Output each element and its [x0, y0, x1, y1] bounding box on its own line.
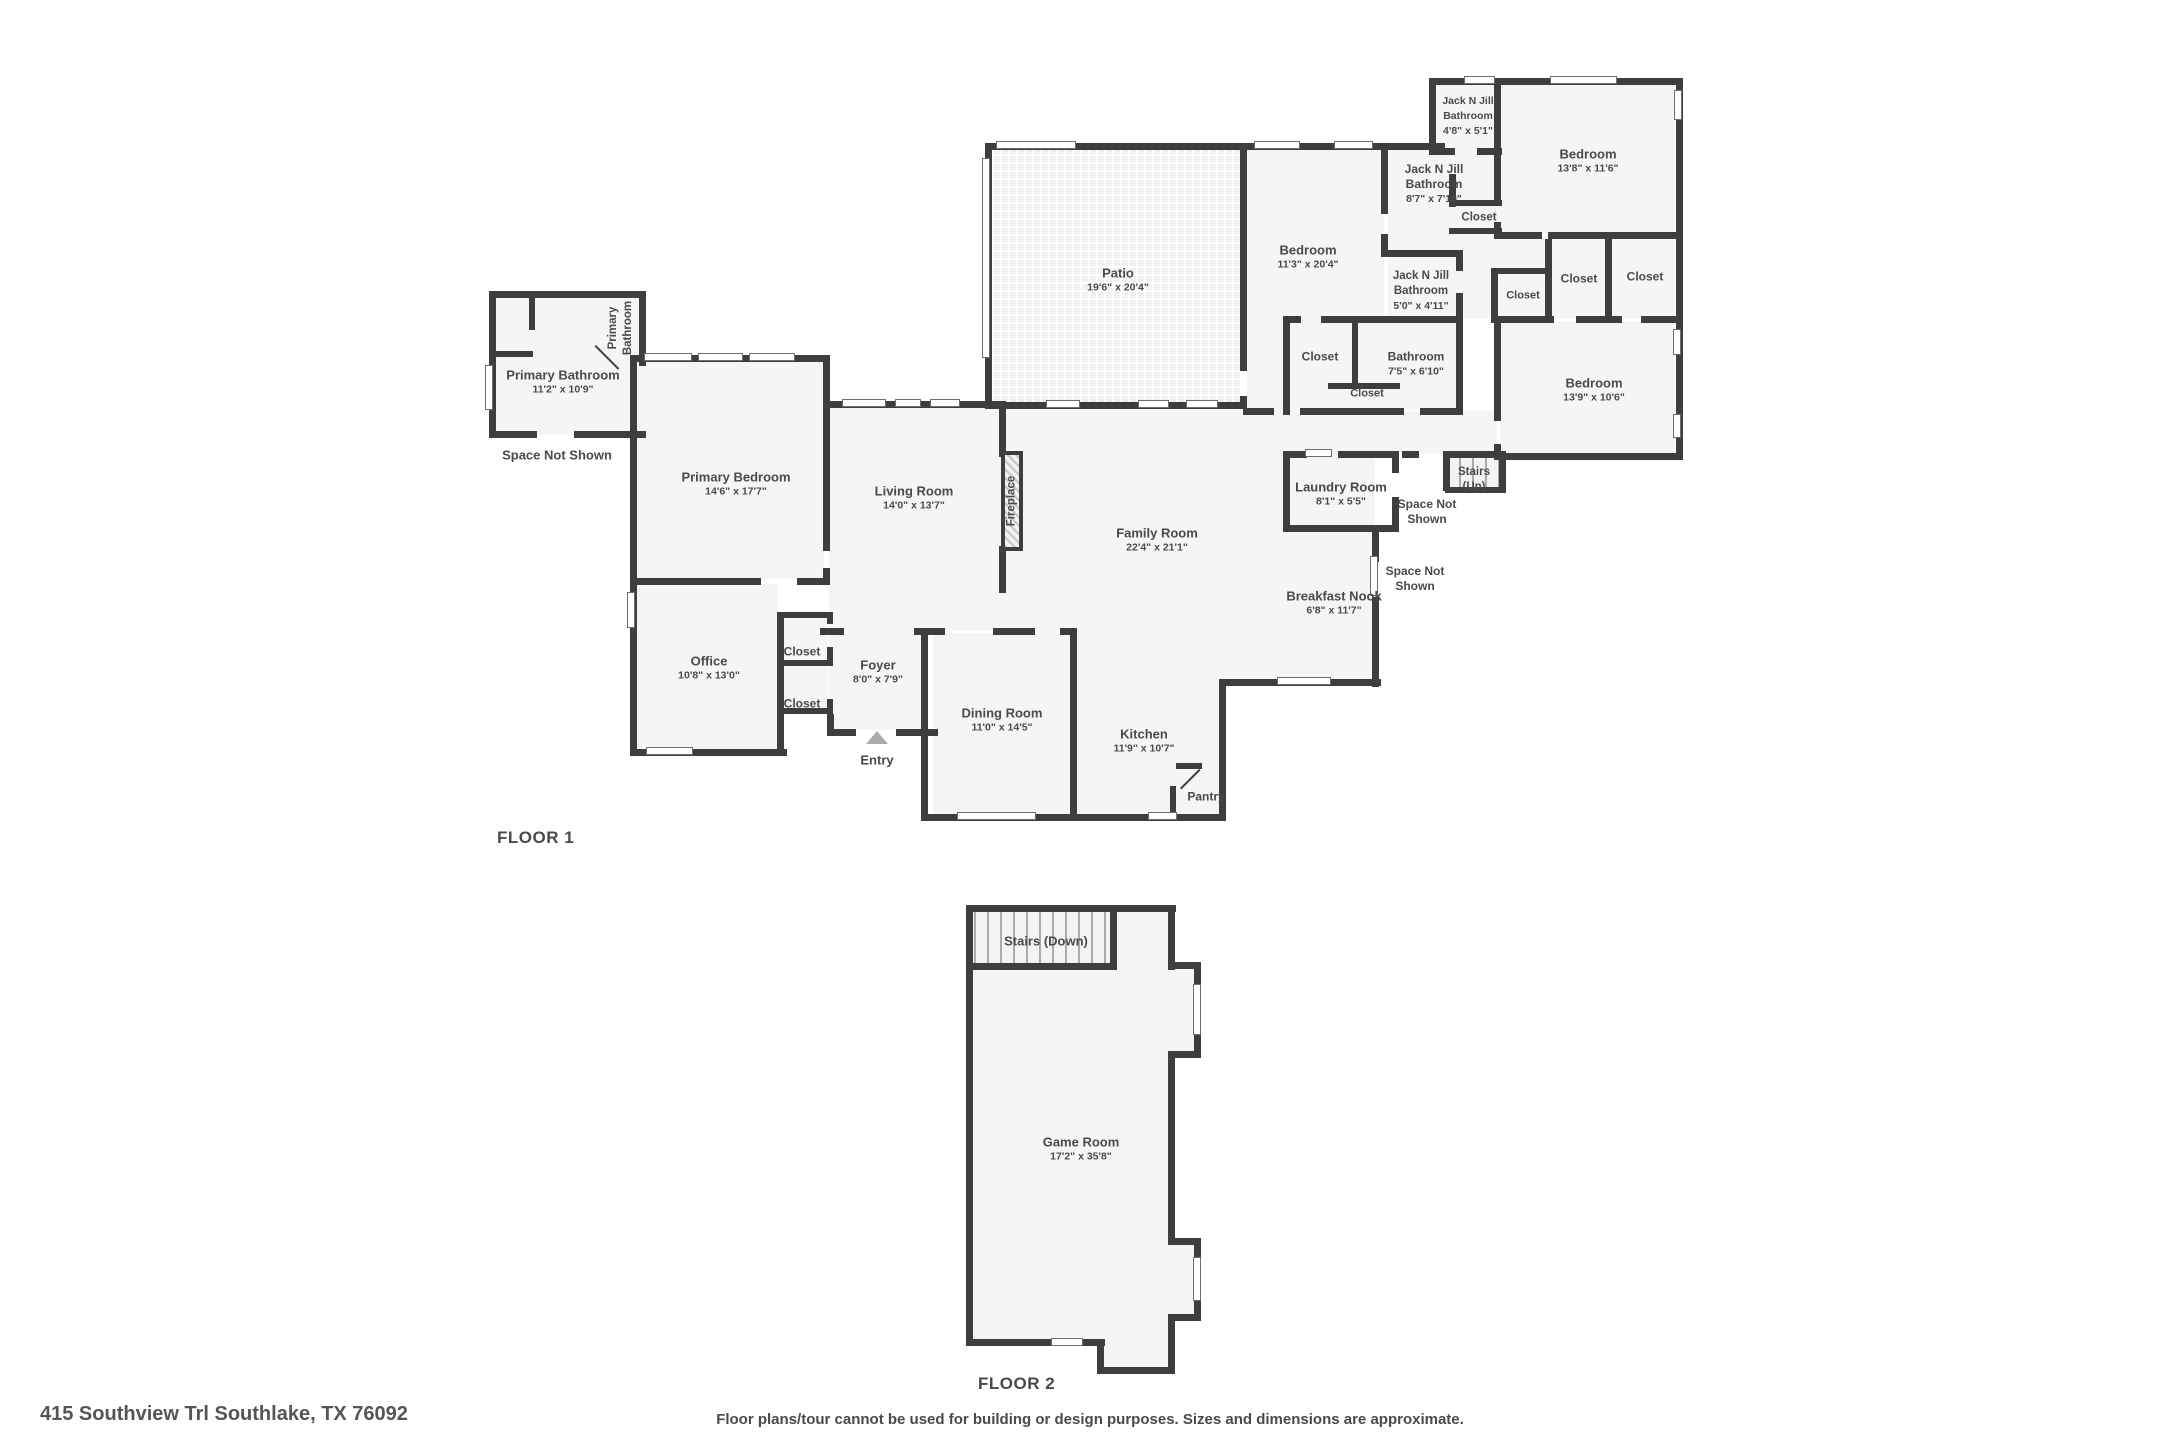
room-dimensions: 10'8" x 13'0": [654, 670, 764, 683]
room-label-bathroom: Bathroom7'5" x 6'10": [1366, 350, 1466, 379]
window: [1254, 141, 1300, 149]
floor-plan-canvas: Primary Bathroom11'2" x 10'9"Primary Bat…: [0, 0, 2172, 1448]
window: [1464, 76, 1495, 84]
room-label-jack-n-jill-bathroom: Jack N Jill Bathroom5'0" x 4'11": [1371, 269, 1471, 313]
wall: [1300, 408, 1404, 415]
wall: [630, 355, 637, 585]
wall: [993, 628, 1035, 635]
wall: [914, 628, 945, 635]
wall: [1443, 451, 1506, 458]
room-label-primary-bedroom: Primary Bedroom14'6" x 17'7": [651, 470, 821, 499]
wall: [1548, 232, 1682, 239]
room-name: Patio: [1063, 266, 1173, 281]
window: [1673, 414, 1681, 438]
room-label-breakfast-nook: Breakfast Nook6'8" x 11'7": [1259, 589, 1409, 618]
room-name: Laundry Room: [1276, 480, 1406, 495]
window: [1277, 677, 1331, 685]
room-dimensions: 17'2" x 35'8": [1016, 1151, 1146, 1164]
room-label-family-room: Family Room22'4" x 21'1": [1092, 526, 1222, 555]
room-name: Foyer: [833, 658, 923, 673]
room-dimensions: 13'9" x 10'6": [1539, 392, 1649, 405]
room-area: [829, 406, 1000, 630]
room-label-foyer: Foyer8'0" x 7'9": [833, 658, 923, 687]
wall: [966, 905, 1176, 912]
room-name: Bedroom: [1253, 243, 1363, 258]
window: [1193, 1257, 1201, 1301]
room-label-closet: Closet: [1285, 350, 1355, 365]
room-name: Primary Bathroom: [606, 285, 636, 371]
room-name: Closet: [1544, 272, 1614, 287]
window: [644, 353, 692, 361]
room-label-fireplace: Fireplace: [1005, 456, 1020, 546]
room-name: Closet: [1444, 211, 1514, 226]
room-area: [1100, 1338, 1169, 1367]
window: [749, 353, 795, 361]
room-dimensions: 4'8" x 5'1": [1424, 125, 1512, 138]
window: [842, 399, 886, 407]
room-dimensions: 22'4" x 21'1": [1092, 542, 1222, 555]
room-label-closet: Closet: [1544, 272, 1614, 287]
window: [1674, 90, 1682, 120]
room-dimensions: 5'0" x 4'11": [1371, 300, 1471, 313]
window: [1550, 76, 1617, 84]
room-label-kitchen: Kitchen11'9" x 10'7": [1089, 727, 1199, 756]
room-name: Bedroom: [1539, 376, 1649, 391]
wall: [1168, 905, 1175, 970]
wall: [529, 291, 535, 330]
window: [1186, 400, 1218, 408]
room-label-patio: Patio19'6" x 20'4": [1063, 266, 1173, 295]
window: [627, 592, 635, 628]
room-dimensions: 8'0" x 7'9": [833, 674, 923, 687]
room-dimensions: 11'9" x 10'7": [1089, 743, 1199, 756]
room-area: [973, 912, 1169, 1340]
wall: [827, 612, 833, 624]
room-label-entry: Entry: [842, 753, 912, 768]
wall: [630, 578, 761, 585]
room-label-closet: Closet: [1493, 289, 1553, 304]
wall: [777, 612, 784, 756]
wall: [823, 568, 830, 585]
room-name: Living Room: [849, 484, 979, 499]
wall: [1097, 1367, 1175, 1374]
room-label-bedroom: Bedroom11'3" x 20'4": [1253, 243, 1363, 272]
room-name: Primary Bedroom: [651, 470, 821, 485]
window: [646, 747, 693, 755]
room-label-bedroom: Bedroom13'9" x 10'6": [1539, 376, 1649, 405]
wall: [966, 963, 1117, 970]
wall: [1402, 451, 1419, 458]
room-label-primary-bathroom: Primary Bathroom11'2" x 10'9": [498, 368, 628, 397]
wall: [1381, 250, 1463, 257]
room-name: Space Not Shown: [502, 448, 612, 463]
wall: [1456, 250, 1463, 271]
window: [485, 365, 493, 410]
room-dimensions: 11'0" x 14'5": [937, 722, 1067, 735]
room-label-dining-room: Dining Room11'0" x 14'5": [937, 706, 1067, 735]
wall: [1168, 1051, 1175, 1245]
room-label-space-not-shown: Space Not Shown: [1377, 497, 1477, 527]
window: [1148, 812, 1177, 820]
room-area: [1375, 411, 1497, 453]
room-name: Space Not Shown: [1377, 497, 1477, 527]
wall: [777, 660, 833, 666]
disclaimer-text: Floor plans/tour cannot be used for buil…: [600, 1411, 1580, 1428]
wall: [966, 1339, 1105, 1346]
room-label-closet: Closet: [767, 645, 837, 660]
window: [957, 812, 1036, 820]
room-name: Closet: [1493, 289, 1553, 304]
room-name: Bathroom: [1366, 350, 1466, 365]
wall: [1449, 228, 1502, 234]
wall: [827, 729, 856, 736]
room-label-bedroom: Bedroom13'8" x 11'6": [1533, 147, 1643, 176]
window: [698, 353, 743, 361]
wall: [966, 905, 973, 1346]
room-dimensions: 14'6" x 17'7": [651, 486, 821, 499]
wall: [1491, 268, 1550, 274]
wall: [1321, 316, 1463, 323]
room-name: Dining Room: [937, 706, 1067, 721]
room-label-jack-n-jill-bathroom: Jack N Jill Bathroom4'8" x 5'1": [1424, 94, 1512, 138]
room-name: Closet: [1285, 350, 1355, 365]
wall: [1429, 148, 1455, 155]
wall: [489, 351, 533, 357]
window: [1138, 400, 1169, 408]
room-label-closet: Closet: [1610, 270, 1680, 285]
room-name: Closet: [767, 645, 837, 660]
room-name: Closet: [1610, 270, 1680, 285]
wall: [489, 431, 537, 438]
room-label-stairs-down: Stairs (Down): [971, 934, 1121, 949]
wall: [1392, 451, 1399, 473]
room-name: Bedroom: [1533, 147, 1643, 162]
room-label-jack-n-jill-bathroom: Jack N Jill Bathroom8'7" x 7'10": [1382, 162, 1486, 206]
room-label-primary-bathroom: Primary Bathroom: [606, 285, 636, 371]
room-name: Pantry: [1171, 790, 1241, 805]
room-dimensions: 11'2" x 10'9": [498, 384, 628, 397]
wall: [1070, 628, 1077, 821]
window: [1046, 400, 1080, 408]
room-name: Game Room: [1016, 1135, 1146, 1150]
room-name: Jack N Jill Bathroom: [1371, 269, 1471, 299]
wall: [1168, 1314, 1175, 1374]
room-label-living-room: Living Room14'0" x 13'7": [849, 484, 979, 513]
room-name: Entry: [842, 753, 912, 768]
room-name: Breakfast Nook: [1259, 589, 1409, 604]
room-dimensions: 19'6" x 20'4": [1063, 282, 1173, 295]
wall: [1338, 451, 1395, 458]
wall: [823, 355, 830, 551]
wall: [777, 612, 833, 618]
room-label-office: Office10'8" x 13'0": [654, 654, 764, 683]
room-label-closet: Closet: [1444, 211, 1514, 226]
room-name: Family Room: [1092, 526, 1222, 541]
room-name: Closet: [1332, 387, 1402, 402]
room-name: Jack N Jill Bathroom: [1424, 94, 1512, 124]
room-label-stairs-up: Stairs (Up): [1445, 465, 1503, 495]
window: [1193, 984, 1201, 1035]
room-name: Stairs (Up): [1445, 465, 1503, 495]
room-dimensions: 8'7" x 7'10": [1382, 193, 1486, 206]
floor-1-title: FLOOR 1: [497, 828, 574, 848]
floor-2-title: FLOOR 2: [978, 1374, 1055, 1394]
window: [930, 399, 960, 407]
room-area: [1169, 1244, 1195, 1315]
wall: [999, 401, 1006, 457]
property-address: 415 Southview Trl Southlake, TX 76092: [40, 1403, 408, 1426]
room-dimensions: 14'0" x 13'7": [849, 500, 979, 513]
wall: [1283, 316, 1290, 415]
entry-direction-arrow: [866, 731, 888, 744]
room-name: Stairs (Down): [971, 934, 1121, 949]
wall: [1576, 316, 1622, 323]
wall: [896, 729, 938, 736]
room-name: Kitchen: [1089, 727, 1199, 742]
room-dimensions: 6'8" x 11'7": [1259, 605, 1409, 618]
room-name: Jack N Jill Bathroom: [1382, 162, 1486, 192]
room-dimensions: 11'3" x 20'4": [1253, 259, 1363, 272]
wall: [1420, 408, 1463, 415]
room-label-closet: Closet: [1332, 387, 1402, 402]
room-dimensions: 7'5" x 6'10": [1366, 366, 1466, 379]
window: [982, 158, 990, 358]
room-name: Office: [654, 654, 764, 669]
room-name: Fireplace: [1005, 456, 1020, 546]
wall: [1494, 453, 1683, 460]
room-label-pantry: Pantry: [1171, 790, 1241, 805]
room-dimensions: 13'8" x 11'6": [1533, 163, 1643, 176]
room-name: Closet: [767, 697, 837, 712]
room-label-space-not-shown: Space Not Shown: [502, 448, 612, 463]
room-label-closet: Closet: [767, 697, 837, 712]
wall: [1243, 408, 1274, 415]
wall: [1240, 143, 1247, 371]
wall: [1494, 322, 1501, 421]
window: [1305, 449, 1332, 457]
window: [1673, 329, 1681, 355]
wall: [999, 546, 1006, 593]
window: [1051, 1338, 1083, 1346]
window: [996, 141, 1076, 149]
room-area: [1169, 969, 1195, 1052]
room-label-game-room: Game Room17'2" x 35'8": [1016, 1135, 1146, 1164]
window: [1334, 141, 1373, 149]
wall: [820, 628, 844, 635]
window: [895, 399, 921, 407]
